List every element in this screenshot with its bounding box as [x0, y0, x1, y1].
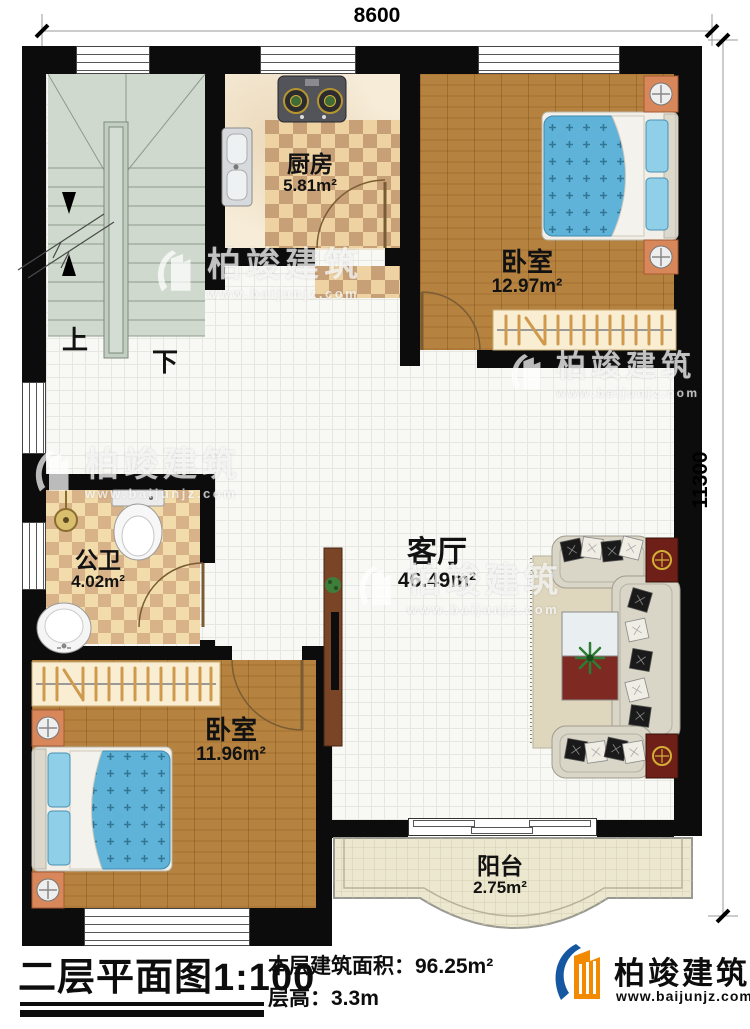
stairs-down-label: 下 — [148, 348, 182, 377]
wall-left-lower — [22, 660, 32, 908]
window-left-bathroom — [22, 522, 46, 590]
floor-bedroom-bottom — [32, 660, 316, 908]
wall-kitchen-bedroom — [400, 46, 420, 366]
room-label-bathroom: 公卫 4.02m² — [46, 548, 150, 592]
stairs-up-label: 上 — [58, 326, 92, 355]
brand-name: 柏竣建筑 — [614, 948, 750, 993]
title-underline-thick — [20, 1010, 264, 1017]
wall-balcony-left — [332, 820, 408, 838]
window-bottom-bedroom — [84, 908, 250, 946]
wall-bottom-right — [250, 908, 332, 946]
floor-height-line: 层高：3.3m — [268, 982, 379, 1012]
sliding-panel — [471, 827, 533, 834]
wall-bottom-left — [22, 908, 84, 946]
sliding-panel — [413, 820, 475, 827]
wall-bathroom-right-a — [200, 474, 215, 563]
wall-kitchen-bottom-stub — [385, 248, 400, 266]
floor-plan-page: 厨房 5.81m² 卧室 12.97m² 客厅 46.49m² 公卫 4.02m… — [0, 0, 750, 1029]
window-top-bedroom — [478, 46, 620, 74]
brand-logo — [546, 942, 610, 1006]
window-left-hall — [22, 382, 46, 454]
room-label-balcony: 阳台 2.75m² — [440, 854, 560, 898]
wall-right — [674, 46, 702, 836]
floor-bedroom-top — [420, 74, 674, 350]
room-label-kitchen: 厨房 5.81m² — [250, 152, 370, 196]
wall-bathroom-bottom-left — [22, 646, 232, 660]
wall-balcony-right — [597, 820, 674, 838]
wall-bedroom-top-bottom — [477, 350, 674, 368]
floor-area-line: 本层建筑面积：96.25m² — [268, 950, 493, 980]
brand-website: www.baijunjz.com — [616, 988, 750, 1004]
floor-kitchen-threshold — [315, 266, 400, 298]
wall-bedroom-bottom-right — [316, 646, 332, 908]
balcony-sliding-door — [408, 818, 597, 836]
room-label-bedroom-top: 卧室 12.97m² — [460, 248, 594, 297]
room-label-living: 客厅 46.49m² — [360, 536, 514, 592]
window-top-kitchen — [260, 46, 356, 74]
room-label-bedroom-bottom: 卧室 11.96m² — [164, 716, 298, 765]
wall-kitchen-bottom — [205, 248, 315, 266]
title-underline-thin — [20, 1002, 264, 1006]
wall-bathroom-top — [22, 474, 215, 490]
dimension-right: 11300 — [689, 443, 713, 517]
window-top-stairs — [76, 46, 150, 74]
sliding-panel — [529, 820, 591, 827]
dimension-top: 8600 — [330, 4, 424, 28]
